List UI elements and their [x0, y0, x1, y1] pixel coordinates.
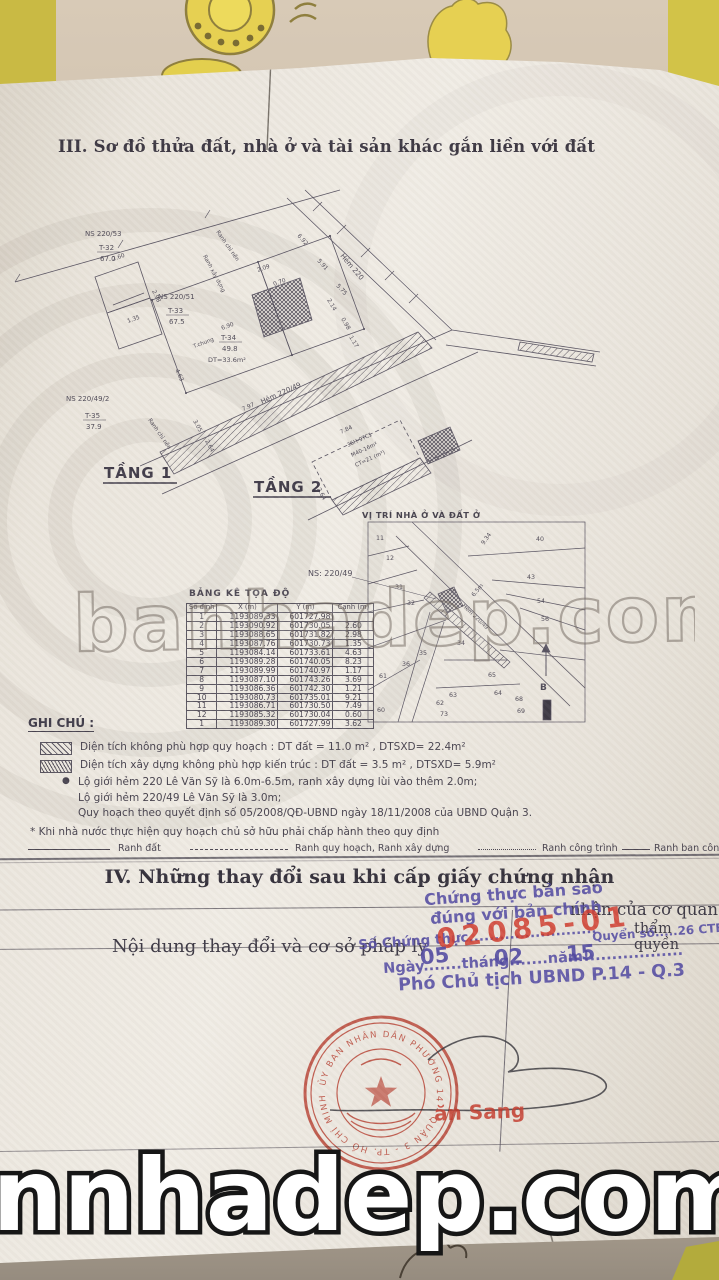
section3-title: III. Sơ đồ thửa đất, nhà ở và tài sản kh…	[58, 137, 595, 156]
notes-star-line: * Khi nhà nước thực hiện quy hoạch chủ s…	[30, 826, 439, 838]
parcel-number: 12	[386, 555, 394, 562]
dimension-label: 7.84	[339, 425, 354, 436]
floor2-code: 36H-9TC1	[346, 432, 373, 449]
plot-area: 67.0	[100, 255, 116, 263]
dimension-label: 4.63	[173, 368, 184, 383]
seal-star-icon	[365, 1076, 397, 1107]
cell-point: 12	[187, 711, 217, 720]
plot-ns-label: NS 220/49/2	[66, 395, 109, 403]
location-map-title: VỊ TRÍ NHÀ Ở VÀ ĐẤT Ở	[362, 508, 481, 520]
plot-number: T-32	[98, 244, 114, 252]
section4-title: IV. Những thay đổi sau khi cấp giấy chứn…	[0, 866, 719, 888]
legend-label-balcony: Ranh ban công	[654, 843, 719, 854]
alley-label: Hẻm 220	[338, 252, 365, 282]
cell-y: 601735.01	[278, 693, 333, 702]
seal-wreath-lines	[347, 1059, 415, 1130]
cell-edge: 7.49	[333, 702, 374, 711]
dimension-label: 6.92	[296, 233, 309, 247]
cell-x: 1193085.32	[217, 711, 278, 720]
table-row: 121193085.32601730.040.60	[187, 711, 374, 720]
notes-line-1: Lộ giới hẻm 220 Lê Văn Sỹ là 6.0m-6.5m, …	[78, 776, 477, 788]
dimension-label: 5.75	[335, 283, 348, 297]
edge-label: Ranh xây dựng	[201, 254, 227, 294]
header-row-bottom-line	[0, 943, 719, 950]
dimension-label: 5.91	[316, 258, 329, 272]
handwritten-month: 02	[493, 944, 524, 970]
signature-stroke	[330, 1036, 606, 1110]
signer-name: ăn Sang	[434, 1098, 526, 1125]
parcel-number: 69	[517, 708, 525, 715]
dimension-label: 0.70	[273, 278, 287, 288]
dimension-label: 1.35	[127, 315, 141, 325]
floor2-inner-labels: 36H-9TC1 M40-16m² CT=21 (m²)	[346, 432, 386, 469]
cell-y: 601730.50	[278, 702, 333, 711]
plot-ns-label: NS 220/51	[158, 293, 195, 301]
alley-label: Hẻm 220/49	[260, 381, 303, 406]
certify-number-value: 02085-01	[435, 899, 634, 956]
dimension-label: 3.05	[191, 419, 203, 433]
notes-heading: GHI CHÚ :	[28, 716, 94, 732]
parcel-number: 40	[536, 536, 544, 543]
legend-label-land: Ranh đất	[118, 843, 161, 854]
handwritten-year: 15	[565, 940, 596, 966]
cell-edge: 9.21	[333, 693, 374, 702]
parcel-number: 63	[449, 692, 457, 699]
parcel-number: 64	[494, 690, 502, 697]
parcel-number: 11	[376, 535, 384, 542]
legend-line-solid	[28, 849, 110, 850]
table-row: 111193086.71601730.507.49	[187, 702, 374, 711]
cell-point: 10	[187, 693, 217, 702]
certify-book-number: Quyển số.....26 CTBS	[592, 920, 719, 944]
vertex-dots	[151, 235, 365, 394]
section-divider-line-2	[0, 858, 719, 863]
legend-line-dashed	[190, 849, 288, 850]
plot-number: T-34	[220, 334, 237, 342]
floor1-title: TẦNG 1	[104, 461, 172, 482]
certify-stamp-line-2: đúng với bản chính	[430, 897, 603, 928]
floorplan-lines	[15, 190, 600, 520]
authority-column-header-fragment-2: thẩm quyền	[634, 921, 719, 953]
edge-label: Ranh chỉ nền	[146, 417, 173, 451]
parcel-number: 62	[436, 700, 444, 707]
dimension-label: 2.64	[203, 439, 215, 453]
dimension-label: 2.14	[325, 298, 337, 312]
legend-line-balcony	[622, 849, 650, 850]
column-divider-line	[499, 910, 513, 1152]
photo-scene: III. Sơ đồ thửa đất, nhà ở và tài sản kh…	[0, 0, 719, 1280]
cell-edge: 0.60	[333, 711, 374, 720]
table-row: 101193080.73601735.019.21	[187, 693, 374, 702]
cell-point: 9	[187, 684, 217, 693]
dimension-label: 2.64	[315, 487, 327, 501]
plot-dt-label: DT=33.6m²	[208, 356, 246, 364]
edge-label: Ranh chỉ nền	[214, 229, 241, 263]
plot-number: T-35	[84, 412, 100, 420]
section-divider-line	[0, 854, 719, 860]
fabric-doodle-arcs	[290, 4, 316, 22]
cell-x: 1193080.73	[217, 693, 278, 702]
dimension-label: 2.09	[257, 264, 271, 274]
floor2-code: CT=21 (m²)	[354, 449, 386, 469]
fabric-doodle-dial-center	[209, 0, 251, 31]
plot-area: 49.8	[222, 345, 238, 353]
map-dimension: 9.34	[481, 532, 493, 546]
change-content-column-header: Nội dung thay đổi và cơ sở pháp lý	[112, 936, 428, 957]
plot-ns-label: NS 220/53	[85, 230, 122, 238]
cell-x: 1193089.30	[217, 720, 278, 729]
parcel-number: 68	[515, 696, 523, 703]
legend-label-construction: Ranh công trình	[542, 843, 618, 854]
legend-line-dotted	[478, 849, 536, 850]
parcel-number: 60	[377, 707, 385, 714]
cell-point: 1	[187, 720, 217, 729]
handwritten-day: 05	[419, 943, 451, 970]
certify-number-label: Số Chứng thực.........................	[358, 921, 597, 954]
bullet-icon: ●	[62, 776, 70, 786]
legend-label-planning: Ranh quy hoạch, Ranh xây dựng	[295, 843, 449, 854]
cell-x: 1193086.71	[217, 702, 278, 711]
dimension-label: 1.17	[347, 335, 359, 349]
shared-wall-label: T.chung	[192, 337, 215, 350]
bottom-watermark: nnhadep.com	[0, 1126, 719, 1271]
cell-edge: 3.62	[333, 720, 374, 729]
floorplan-labels: NS 220/53 T-32 67.0 NS 220/51 T-33 67.5 …	[66, 229, 386, 469]
plot-number: T-33	[167, 307, 183, 315]
notes-line-2: Lộ giới hẻm 220/49 Lê Văn Sỹ là 3.0m;	[78, 792, 281, 804]
floor-titles: TẦNG 1 TẦNG 2	[103, 461, 331, 497]
hatch-legend-swatch-1	[40, 742, 72, 755]
plot-area: 37.9	[86, 423, 102, 431]
notes-line-3: Quy hoạch theo quyết định số 05/2008/QĐ-…	[78, 807, 532, 819]
bottom-watermark-text: nnhadep.com	[0, 1137, 719, 1254]
center-watermark-text: banhadep.com	[72, 570, 695, 670]
cell-x: 1193086.36	[217, 684, 278, 693]
north-indicator: B	[540, 683, 547, 693]
signer-title: Phó Chủ tịch UBND P.14 - Q.3	[398, 961, 686, 996]
cell-y: 601742.30	[278, 684, 333, 693]
dimension-labels: 2.60 2.98 1.35 4.63 6.90 2.09 0.70 2.14 …	[112, 233, 359, 501]
signature	[318, 1026, 618, 1121]
authority-column-header-fragment-1: nhận của cơ quan	[570, 900, 718, 919]
certify-date-line: Ngày.......tháng.......năm!.............…	[383, 943, 684, 977]
plot-area: 67.5	[169, 318, 185, 326]
table-row: 91193086.36601742.301.21	[187, 684, 374, 693]
center-watermark: banhadep.com	[55, 570, 695, 680]
cell-edge: 1.21	[333, 684, 374, 693]
fabric-doodle-duck	[428, 0, 511, 68]
dimension-label: 7.97	[241, 402, 256, 413]
table-row: 11193089.30601727.993.62	[187, 720, 374, 729]
notes-legend-1: Diện tích không phù hợp quy hoạch : DT đ…	[80, 741, 466, 753]
certify-stamp-line-1: Chứng thực bản sao	[424, 878, 604, 909]
hatch-legend-swatch-2	[40, 760, 72, 773]
cell-point: 11	[187, 702, 217, 711]
cell-y: 601730.04	[278, 711, 333, 720]
dimension-label: 6.90	[221, 322, 235, 332]
floor2-title: TẦNG 2	[254, 475, 322, 496]
dimension-label: 0.98	[339, 317, 351, 331]
floor2-code: M40-16m²	[350, 441, 379, 459]
parcel-number: 73	[440, 711, 448, 718]
dimension-label: 2.98	[150, 289, 161, 304]
dimension-label: 2.60	[112, 253, 126, 263]
cell-y: 601727.99	[278, 720, 333, 729]
notes-legend-2: Diện tích xây dựng không phù hợp kiến tr…	[80, 759, 496, 771]
header-row-top-line	[0, 904, 719, 910]
